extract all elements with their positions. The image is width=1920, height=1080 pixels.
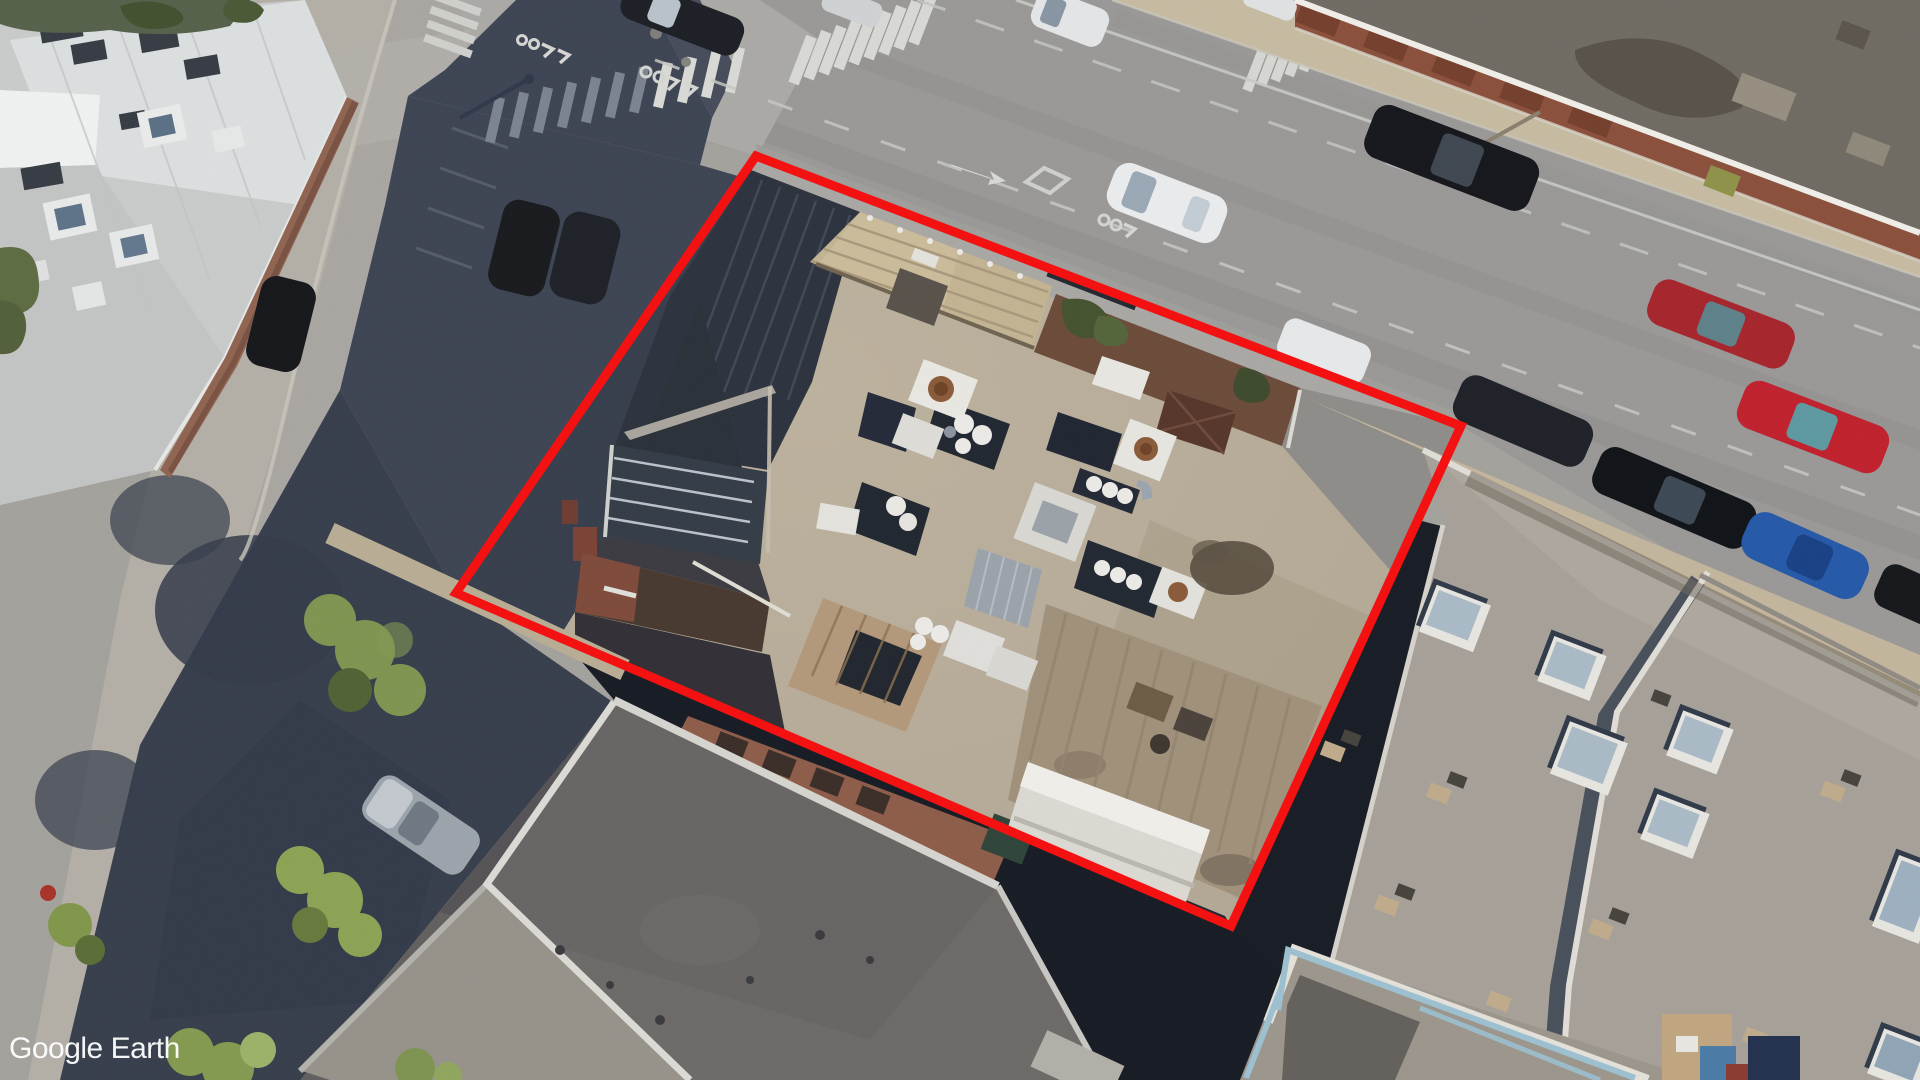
svg-text:Google Earth: Google Earth <box>9 1032 180 1065</box>
